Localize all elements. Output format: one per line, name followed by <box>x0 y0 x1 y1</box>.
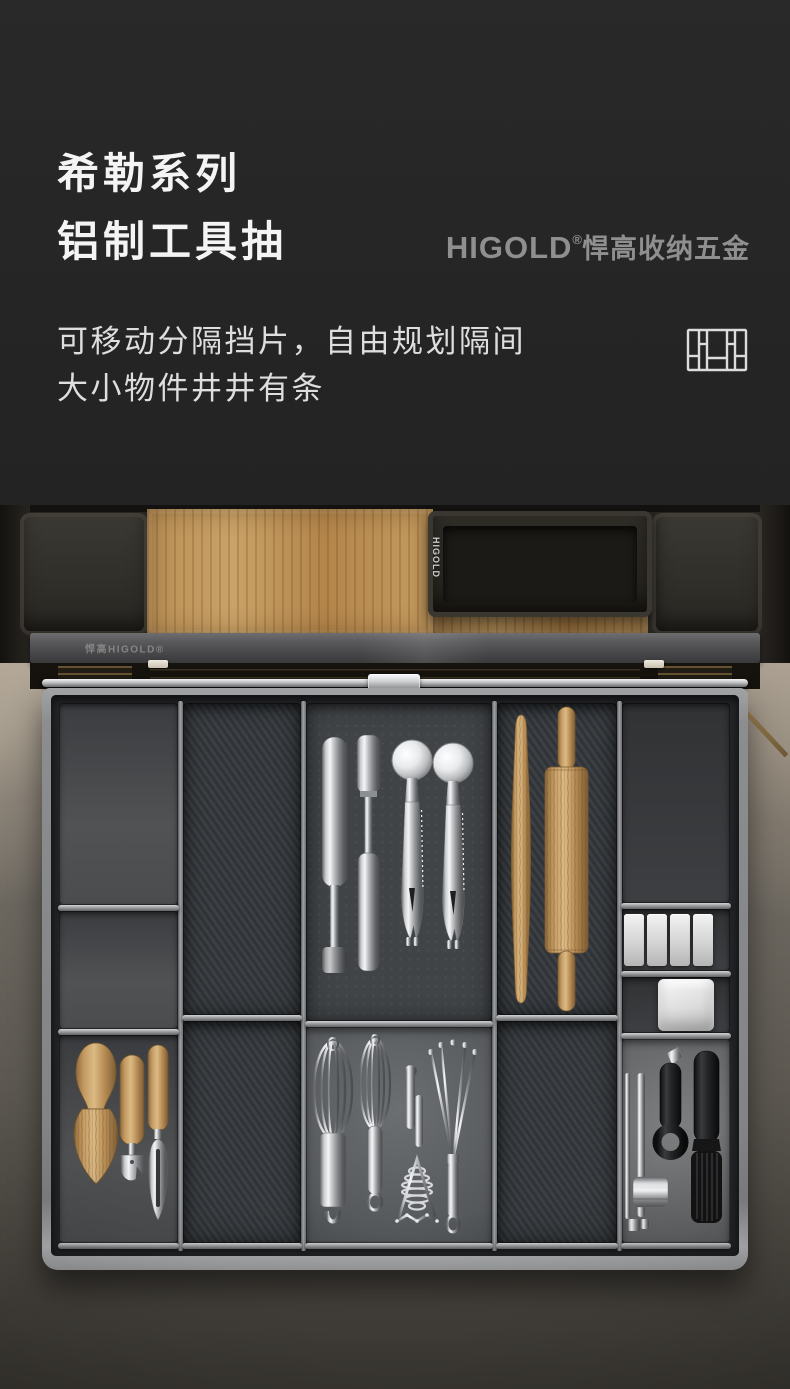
rail-brand-text: 悍高HIGOLD® <box>85 641 165 656</box>
movable-divider-bar <box>58 1243 179 1249</box>
french-rolling-pin <box>511 715 530 1003</box>
floor-wall-left <box>0 660 46 910</box>
brand-logo-name: HIGOLD <box>446 230 573 265</box>
registered-mark-icon: ® <box>572 232 582 247</box>
compartment-scoops <box>306 703 492 1021</box>
white-block <box>693 914 713 966</box>
cabinet-edge-right <box>760 505 790 663</box>
upper-drawer-bin-right <box>652 513 762 635</box>
whisks-illustration <box>306 1027 492 1243</box>
dark-storage-tray: HIGOLD <box>428 511 652 617</box>
hero-section: 希勒系列 铝制工具抽 HIGOLD®悍高收纳五金 可移动分隔挡片，自由规划隔间 … <box>0 0 790 505</box>
upper-drawer-bin-left <box>20 513 148 635</box>
black-paring-knife <box>657 1047 684 1156</box>
white-block <box>624 914 644 966</box>
compartment-white-tray <box>622 977 730 1033</box>
brand-logo: HIGOLD®悍高收纳五金 <box>446 227 750 266</box>
compartment-column-2 <box>183 703 301 1249</box>
spiral-masher <box>395 1067 439 1223</box>
drawer-interior <box>51 695 739 1256</box>
white-block <box>670 914 690 966</box>
wooden-cheese-knife <box>74 1043 118 1184</box>
wooden-cutting-board <box>147 509 433 635</box>
can-opener <box>120 1055 145 1181</box>
compartment-empty <box>183 1021 301 1243</box>
tray-brand-text: HIGOLD <box>431 537 441 578</box>
silicone-basting-brush <box>691 1051 722 1223</box>
desc-line-2: 大小物件井井有条 <box>57 365 526 412</box>
ice-cream-scoop <box>392 740 432 946</box>
open-tool-drawer <box>42 688 748 1270</box>
compartment-column-4 <box>497 703 617 1249</box>
movable-divider-bar <box>621 1243 731 1249</box>
compartment-column-5 <box>622 703 730 1249</box>
wood-tools-illustration <box>59 1035 178 1243</box>
runner-clip-left <box>148 660 168 668</box>
black-tools-illustration <box>622 1039 730 1243</box>
compartment-black-tools <box>622 1039 730 1243</box>
page-title: 希勒系列 铝制工具抽 <box>57 140 287 276</box>
brand-logo-chinese: 悍高收纳五金 <box>582 234 750 264</box>
compartment-empty <box>622 703 730 903</box>
balloon-whisk-large <box>314 1038 352 1222</box>
compartment-empty <box>497 1021 617 1243</box>
product-description: 可移动分隔挡片，自由规划隔间 大小物件井井有条 <box>57 318 526 412</box>
title-line-2: 铝制工具抽 <box>57 208 287 276</box>
compartment-rolling-pins <box>497 703 617 1015</box>
handled-rolling-pin <box>545 707 588 1011</box>
compartment-white-blocks <box>622 909 730 971</box>
tray-inner <box>443 526 637 602</box>
product-detail-page: 希勒系列 铝制工具抽 HIGOLD®悍高收纳五金 可移动分隔挡片，自由规划隔间 … <box>0 0 790 1389</box>
drawer-divider-grid-icon <box>686 328 748 372</box>
compartment-empty <box>59 703 178 905</box>
rail-sheen <box>359 633 490 663</box>
compartment-wood-tools <box>59 1035 178 1243</box>
movable-divider-bar <box>182 1243 302 1249</box>
apple-corer <box>322 737 347 973</box>
runner-clip-right <box>644 660 664 668</box>
compartment-whisks <box>306 1027 492 1243</box>
fan-whisk <box>428 1040 478 1233</box>
balloon-whisk-small <box>360 1035 390 1210</box>
desc-line-1: 可移动分隔挡片，自由规划隔间 <box>57 318 526 365</box>
compartment-column-3 <box>306 703 492 1249</box>
corer <box>357 735 380 971</box>
product-photo: HIGOLD 悍高HIGOLD® <box>0 505 790 1389</box>
vegetable-peeler <box>148 1045 168 1220</box>
scoops-illustration <box>306 703 492 1021</box>
compartment-empty <box>183 703 301 1015</box>
movable-divider-bar <box>496 1243 618 1249</box>
movable-divider-bar <box>305 1243 493 1249</box>
upper-drawer-front-rail: 悍高HIGOLD® <box>30 633 760 663</box>
white-block <box>647 914 667 966</box>
compartment-column-1 <box>59 703 178 1249</box>
white-square-tray <box>658 979 714 1031</box>
compartment-empty <box>59 911 178 1029</box>
rolling-pins-illustration <box>497 703 617 1015</box>
ice-cream-scoop <box>433 743 473 949</box>
title-line-1: 希勒系列 <box>57 140 287 208</box>
